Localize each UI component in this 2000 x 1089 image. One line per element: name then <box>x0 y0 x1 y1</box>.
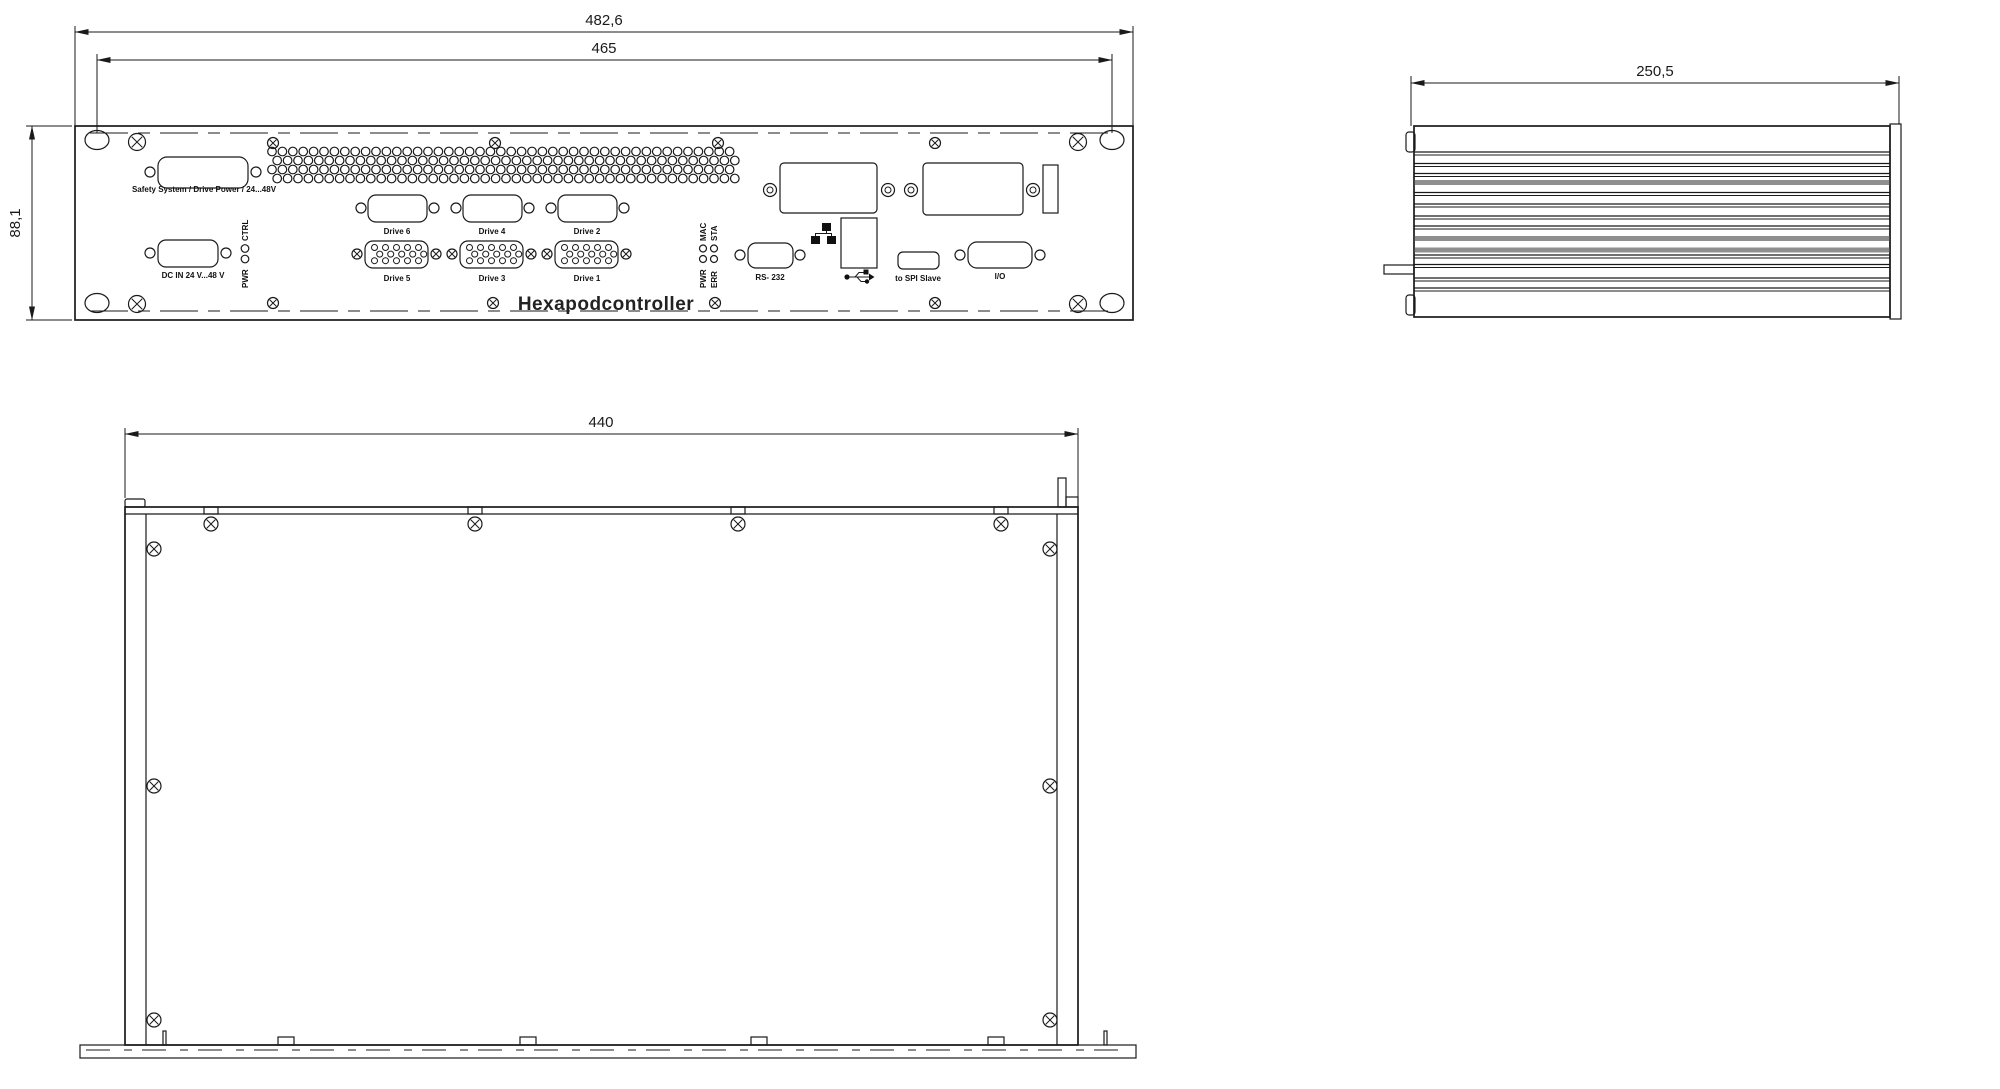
vent-hole <box>538 147 547 156</box>
hd-pin <box>405 245 411 251</box>
drive4-label: Drive 4 <box>479 227 506 236</box>
dimension-top-width: 440 <box>125 414 1078 504</box>
led-pwr-label: PWR <box>241 269 250 288</box>
vent-hole <box>663 165 672 174</box>
hd-connector-pins <box>372 245 617 264</box>
vent-hole <box>439 156 448 165</box>
vent-hole <box>304 174 313 183</box>
vent-hole <box>325 156 334 165</box>
vent-hole <box>320 165 329 174</box>
option-slot-2 <box>923 163 1058 215</box>
vent-hole <box>507 165 516 174</box>
vent-hole <box>705 147 714 156</box>
vent-hole <box>455 147 464 156</box>
dimension-height: 88,1 <box>7 126 72 320</box>
vent-hole <box>663 147 672 156</box>
vent-hole <box>699 156 708 165</box>
vent-hole <box>549 147 558 156</box>
hd-pin <box>383 258 389 264</box>
vent-hole <box>653 165 662 174</box>
vent-hole <box>481 156 490 165</box>
vent-hole <box>450 156 459 165</box>
hd-pin <box>478 258 484 264</box>
vent-hole <box>590 147 599 156</box>
vent-hole <box>684 147 693 156</box>
led-block-left: CTRL PWR <box>241 220 250 288</box>
hd-jackscrew <box>542 249 552 259</box>
hd-pin <box>562 245 568 251</box>
vent-hole <box>398 174 407 183</box>
chassis-screw <box>147 779 161 793</box>
vent-hole <box>705 165 714 174</box>
vent-hole <box>642 165 651 174</box>
hd-jackscrew <box>447 249 457 259</box>
vent-hole <box>668 156 677 165</box>
vent-hole <box>491 174 500 183</box>
vent-hole <box>330 147 339 156</box>
vent-hole <box>429 156 438 165</box>
hd-pin <box>416 245 422 251</box>
hd-pin <box>516 251 522 257</box>
panel-screw <box>268 298 279 309</box>
hd-pin <box>399 251 405 257</box>
ethernet-port <box>811 218 877 284</box>
slot-screw <box>764 184 777 197</box>
chassis-screw <box>731 517 745 531</box>
hd-pin <box>394 245 400 251</box>
hd-pin <box>573 258 579 264</box>
vent-hole <box>273 174 282 183</box>
vent-hole <box>403 147 412 156</box>
corner-screw <box>129 296 146 313</box>
vent-hole <box>341 165 350 174</box>
fin-shadow-band <box>1415 180 1890 185</box>
dim-top-width-value: 440 <box>588 414 613 431</box>
chassis-screw <box>1043 1013 1057 1027</box>
side-view: 250,5 <box>1384 63 1901 319</box>
vent-hole <box>715 165 724 174</box>
vent-hole <box>731 156 740 165</box>
vent-hole <box>616 156 625 165</box>
vent-hole <box>699 174 708 183</box>
vent-hole <box>325 174 334 183</box>
hd-pin <box>606 245 612 251</box>
led-sta-label: STA <box>710 225 719 241</box>
vent-hole <box>315 174 324 183</box>
usb-icon <box>844 270 874 284</box>
dim-inner-width-value: 465 <box>591 40 616 57</box>
hd-pin <box>595 258 601 264</box>
vent-hole <box>554 156 563 165</box>
vent-hole <box>299 165 308 174</box>
vent-hole <box>559 147 568 156</box>
hd-pin <box>483 251 489 257</box>
vent-hole <box>481 174 490 183</box>
hd-pin <box>405 258 411 264</box>
vent-hole <box>413 147 422 156</box>
side-front-panel-edge <box>1890 124 1901 319</box>
vent-hole <box>367 156 376 165</box>
vent-hole <box>330 165 339 174</box>
vent-hole <box>564 156 573 165</box>
vent-hole <box>408 156 417 165</box>
panel-screw <box>930 298 941 309</box>
corner-screw <box>1070 134 1087 151</box>
vent-hole <box>419 174 428 183</box>
heatsink-fins <box>1414 152 1890 291</box>
vent-hole <box>486 165 495 174</box>
top-rear-pin-foot <box>1066 497 1078 507</box>
vent-hole <box>637 156 646 165</box>
vent-hole <box>611 147 620 156</box>
corner-screw <box>129 134 146 151</box>
drive3-label: Drive 3 <box>479 274 506 283</box>
rs232-label: RS- 232 <box>755 273 785 282</box>
vent-hole <box>647 156 656 165</box>
hd-pin <box>372 258 378 264</box>
vent-hole <box>309 147 318 156</box>
vent-hole <box>502 156 511 165</box>
hd-pin <box>500 245 506 251</box>
vent-hole <box>450 174 459 183</box>
vent-hole <box>341 147 350 156</box>
dim-height-value: 88,1 <box>7 208 24 237</box>
vent-hole <box>294 174 303 183</box>
vent-hole <box>491 156 500 165</box>
ethernet-icon <box>811 223 836 244</box>
vent-hole <box>393 147 402 156</box>
vent-hole <box>512 156 521 165</box>
led-pwr2 <box>700 256 707 263</box>
top-body-outline <box>125 507 1078 1045</box>
vent-hole <box>731 174 740 183</box>
led-sta <box>711 245 718 252</box>
hd-pin <box>467 258 473 264</box>
hd-jackscrew <box>431 249 441 259</box>
vent-hole <box>320 147 329 156</box>
vent-hole <box>387 174 396 183</box>
vent-hole <box>694 165 703 174</box>
hd-pin <box>584 258 590 264</box>
led-err <box>711 256 718 263</box>
vent-hole <box>497 147 506 156</box>
vent-hole <box>569 147 578 156</box>
top-view: 440 <box>80 414 1136 1058</box>
led-pwr2-label: PWR <box>699 269 708 288</box>
vent-hole <box>361 165 370 174</box>
drive1-label: Drive 1 <box>574 274 601 283</box>
vent-hole <box>533 174 542 183</box>
vent-hole <box>367 174 376 183</box>
hd-pin <box>489 245 495 251</box>
vent-hole <box>335 174 344 183</box>
vent-hole <box>445 165 454 174</box>
vent-hole <box>538 165 547 174</box>
connector-rs232: RS- 232 <box>735 243 805 282</box>
vent-hole <box>382 147 391 156</box>
vent-hole <box>497 165 506 174</box>
vent-hole <box>601 165 610 174</box>
hd-pin <box>494 251 500 257</box>
chassis-screw <box>147 1013 161 1027</box>
vent-hole <box>517 165 526 174</box>
vent-hole <box>419 156 428 165</box>
vent-hole <box>694 147 703 156</box>
hd-pin <box>567 251 573 257</box>
hd-pin <box>511 258 517 264</box>
vent-hole <box>351 165 360 174</box>
vent-hole <box>471 174 480 183</box>
hd-pin <box>394 258 400 264</box>
hd-pin <box>478 245 484 251</box>
dc-in-label: DC IN 24 V...48 V <box>162 271 226 280</box>
vent-hole <box>653 147 662 156</box>
vent-hole <box>679 156 688 165</box>
vent-hole <box>595 156 604 165</box>
vent-hole <box>351 147 360 156</box>
led-mac <box>700 245 707 252</box>
vent-hole <box>611 165 620 174</box>
vent-hole <box>523 156 532 165</box>
vent-hole-grid <box>268 147 739 183</box>
vent-hole <box>445 147 454 156</box>
vent-hole <box>309 165 318 174</box>
vent-hole <box>689 156 698 165</box>
vent-hole <box>523 174 532 183</box>
led-ctrl-label: CTRL <box>241 220 250 241</box>
option-slot-blank <box>1043 165 1058 213</box>
vent-hole <box>689 174 698 183</box>
chassis-screw <box>1043 542 1057 556</box>
vent-hole <box>616 174 625 183</box>
vent-hole <box>720 156 729 165</box>
vent-hole <box>439 174 448 183</box>
vent-hole <box>273 156 282 165</box>
hd-pin <box>578 251 584 257</box>
vent-hole <box>528 165 537 174</box>
top-front-flange <box>80 1031 1136 1058</box>
vent-hole <box>658 156 667 165</box>
vent-hole <box>575 174 584 183</box>
hd-pin <box>505 251 511 257</box>
vent-hole <box>289 165 298 174</box>
chassis-screw <box>994 517 1008 531</box>
side-peg <box>1384 265 1414 274</box>
hd-pin <box>562 258 568 264</box>
connector-safety-system: Safety System / Drive Power / 24...48V <box>132 157 277 194</box>
vent-hole <box>471 156 480 165</box>
led-ctrl <box>241 245 249 253</box>
hd-pin <box>573 245 579 251</box>
vent-hole <box>564 174 573 183</box>
vent-hole <box>684 165 693 174</box>
vent-hole <box>465 165 474 174</box>
vent-hole <box>294 156 303 165</box>
vent-hole <box>627 174 636 183</box>
vent-hole <box>460 156 469 165</box>
vent-hole <box>512 174 521 183</box>
vent-hole <box>528 147 537 156</box>
vent-hole <box>372 147 381 156</box>
vent-hole <box>673 147 682 156</box>
dimension-inner-width: 465 <box>97 40 1112 133</box>
connector-io: I/O <box>955 242 1045 281</box>
vent-hole <box>668 174 677 183</box>
slot-screw <box>882 184 895 197</box>
hd-pin <box>500 258 506 264</box>
vent-hole <box>278 147 287 156</box>
hd-pin <box>410 251 416 257</box>
vent-hole <box>554 174 563 183</box>
vent-hole <box>585 156 594 165</box>
vent-hole <box>424 147 433 156</box>
vent-hole <box>268 165 277 174</box>
vent-hole <box>502 174 511 183</box>
vent-hole <box>627 156 636 165</box>
vent-hole <box>403 165 412 174</box>
vent-hole <box>710 156 719 165</box>
hd-pin <box>595 245 601 251</box>
vent-hole <box>356 174 365 183</box>
vent-hole <box>658 174 667 183</box>
top-rear-ticks <box>204 507 1008 514</box>
hd-pin <box>421 251 427 257</box>
vent-hole <box>580 147 589 156</box>
vent-hole <box>632 165 641 174</box>
vent-hole <box>361 147 370 156</box>
drive2-label: Drive 2 <box>574 227 601 236</box>
vent-hole <box>460 174 469 183</box>
safety-system-label: Safety System / Drive Power / 24...48V <box>132 185 277 194</box>
vent-hole <box>289 147 298 156</box>
dimension-outer-width: 482,6 <box>75 12 1133 126</box>
vent-hole <box>673 165 682 174</box>
vent-hole <box>283 156 292 165</box>
vent-hole <box>647 174 656 183</box>
chassis-screw <box>204 517 218 531</box>
vent-hole <box>455 165 464 174</box>
vent-hole <box>315 156 324 165</box>
hd-pin <box>416 258 422 264</box>
vent-hole <box>434 147 443 156</box>
vent-hole <box>424 165 433 174</box>
vent-hole <box>278 165 287 174</box>
drive-connectors-bottom: Drive 5 Drive 3 Drive 1 <box>352 241 631 283</box>
hd-pin <box>600 251 606 257</box>
vent-hole <box>408 174 417 183</box>
vent-hole <box>434 165 443 174</box>
vent-hole <box>517 147 526 156</box>
hd-pin <box>611 251 617 257</box>
vent-hole <box>549 165 558 174</box>
vent-hole <box>720 174 729 183</box>
hd-pin <box>372 245 378 251</box>
vent-hole <box>595 174 604 183</box>
hd-pin <box>383 245 389 251</box>
vent-hole <box>398 156 407 165</box>
vent-hole <box>377 174 386 183</box>
top-rear-pin <box>1058 478 1066 507</box>
vent-hole <box>346 156 355 165</box>
front-panel-outline <box>75 126 1133 320</box>
vent-hole <box>507 147 516 156</box>
vent-hole <box>575 156 584 165</box>
vent-hole <box>387 156 396 165</box>
spi-label: to SPI Slave <box>895 274 941 283</box>
dim-side-width-value: 250,5 <box>1636 63 1674 80</box>
vent-hole <box>346 174 355 183</box>
panel-screw <box>488 298 499 309</box>
chassis-screw <box>147 542 161 556</box>
vent-hole <box>679 174 688 183</box>
vent-hole <box>606 156 615 165</box>
vent-hole <box>382 165 391 174</box>
top-rear-tab-left <box>125 499 145 507</box>
vent-hole <box>465 147 474 156</box>
hd-jackscrew <box>526 249 536 259</box>
hexapod-controller-drawing: 482,6 465 88,1 <box>0 0 2000 1089</box>
vent-hole <box>372 165 381 174</box>
fin-shadow-band <box>1415 236 1890 241</box>
vent-hole <box>533 156 542 165</box>
panel-screw <box>490 138 501 149</box>
hd-pin <box>388 251 394 257</box>
drive6-label: Drive 6 <box>384 227 411 236</box>
product-name: Hexapodcontroller <box>518 294 694 315</box>
hd-pin <box>589 251 595 257</box>
vent-hole <box>621 165 630 174</box>
vent-hole <box>356 156 365 165</box>
hd-pin <box>467 245 473 251</box>
led-err-label: ERR <box>710 271 719 288</box>
hd-pin <box>472 251 478 257</box>
vent-hole <box>580 165 589 174</box>
drive-connectors-top: Drive 6 Drive 4 Drive 2 <box>356 195 629 236</box>
connector-dc-in: DC IN 24 V...48 V <box>145 240 231 280</box>
vent-hole <box>304 156 313 165</box>
dim-outer-width-value: 482,6 <box>585 12 623 29</box>
hd-pin <box>584 245 590 251</box>
hd-jackscrew <box>352 249 362 259</box>
vent-hole <box>642 147 651 156</box>
io-label: I/O <box>995 272 1006 281</box>
vent-hole <box>585 174 594 183</box>
vent-hole <box>601 147 610 156</box>
slot-screw <box>1027 184 1040 197</box>
vent-hole <box>393 165 402 174</box>
corner-screw <box>1070 296 1087 313</box>
vent-hole <box>621 147 630 156</box>
panel-screw <box>710 298 721 309</box>
front-panel-screws <box>129 134 1087 313</box>
hd-jackscrew <box>621 249 631 259</box>
fin-shadow-band <box>1415 248 1890 253</box>
vent-hole <box>335 156 344 165</box>
vent-hole <box>590 165 599 174</box>
vent-hole <box>632 147 641 156</box>
technical-drawing-page: 482,6 465 88,1 <box>0 0 2000 1089</box>
panel-screw <box>930 138 941 149</box>
vent-hole <box>725 165 734 174</box>
vent-hole <box>710 174 719 183</box>
option-slot-1 <box>780 163 877 213</box>
vent-hole <box>377 156 386 165</box>
vent-hole <box>543 174 552 183</box>
led-block-right: MAC STA PWR ERR <box>699 223 719 288</box>
hd-pin <box>511 245 517 251</box>
chassis-screw <box>1043 779 1057 793</box>
vent-hole <box>299 147 308 156</box>
